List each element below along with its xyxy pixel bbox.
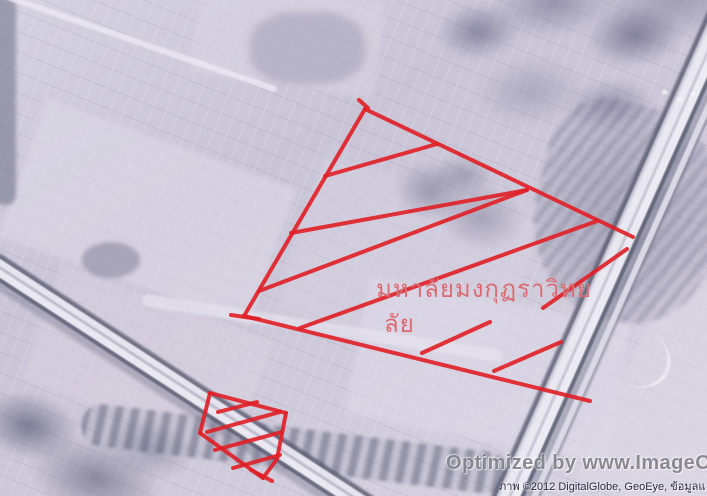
small-polygon-right-edge [277, 413, 286, 459]
image-optimizer-watermark: Optimized by www.ImageOptimizer.net [446, 452, 707, 475]
small-polygon-hatch-1 [218, 402, 257, 412]
big-polygon-left-edge [244, 109, 365, 316]
right-hatch-2 [422, 322, 490, 353]
plot-label-line2: ลัย [384, 312, 415, 338]
imagery-attribution: ภาพ ©2012 DigitalGlobe, GeoEye, ข้อมูลแ [499, 477, 705, 495]
plot-label-line1: มหาลัยมงกุฏราวิทย [376, 277, 592, 303]
satellite-map: มหาลัยมงกุฏราวิทย ลัย Optimized by www.I… [0, 0, 707, 496]
small-polygon-left-edge [200, 393, 210, 433]
small-polygon-hatch-2 [207, 412, 280, 432]
big-polygon-top-vertex-tick [359, 100, 368, 108]
big-polygon-hatch-4 [300, 221, 597, 328]
big-polygon-bottom-edge [244, 316, 590, 401]
big-polygon-bottom-left-vertex-tick [231, 315, 259, 319]
annotation-layer [0, 0, 707, 496]
small-polygon-hatch-3 [215, 432, 282, 450]
big-polygon-hatch-2 [291, 190, 527, 233]
big-polygon-top-right-edge [365, 109, 633, 237]
right-hatch-3 [494, 342, 561, 371]
